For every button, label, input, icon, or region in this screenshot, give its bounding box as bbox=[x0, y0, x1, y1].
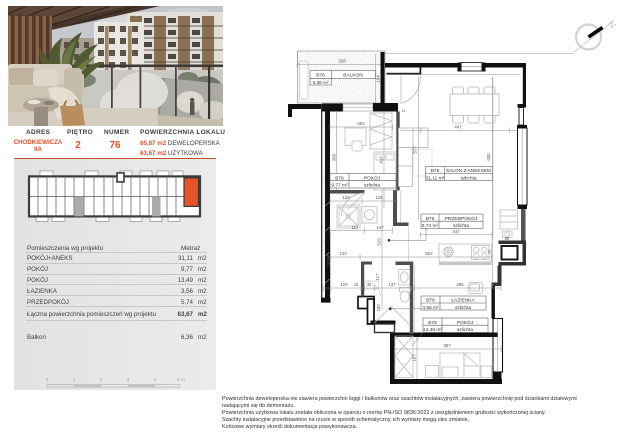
svg-text:11: 11 bbox=[401, 108, 405, 113]
svg-text:POKÓJ: POKÓJ bbox=[457, 319, 474, 326]
svg-text:13,49 m²: 13,49 m² bbox=[423, 327, 442, 333]
svg-text:128: 128 bbox=[342, 195, 350, 200]
svg-text:5 m: 5 m bbox=[177, 377, 185, 382]
svg-text:529: 529 bbox=[376, 238, 381, 246]
svg-text:35: 35 bbox=[367, 282, 372, 287]
svg-text:B76: B76 bbox=[426, 298, 435, 304]
svg-text:4: 4 bbox=[154, 377, 157, 382]
svg-text:254: 254 bbox=[357, 121, 365, 126]
svg-text:B76: B76 bbox=[335, 175, 344, 181]
svg-text:31,11 m²: 31,11 m² bbox=[426, 175, 445, 181]
svg-text:3,56 m²: 3,56 m² bbox=[422, 305, 439, 311]
svg-text:3: 3 bbox=[127, 377, 130, 382]
svg-text:B76: B76 bbox=[428, 320, 437, 326]
svg-text:18: 18 bbox=[487, 250, 492, 254]
svg-text:szlichta: szlichta bbox=[364, 183, 380, 189]
svg-text:117: 117 bbox=[352, 225, 360, 230]
svg-text:2: 2 bbox=[100, 377, 103, 382]
svg-text:ŁAZIENKA: ŁAZIENKA bbox=[451, 298, 475, 304]
svg-text:447: 447 bbox=[452, 229, 460, 234]
svg-text:BALKON: BALKON bbox=[343, 73, 363, 79]
svg-text:0: 0 bbox=[46, 377, 49, 382]
svg-text:123: 123 bbox=[339, 251, 347, 256]
svg-text:194: 194 bbox=[376, 75, 381, 83]
svg-text:B76: B76 bbox=[431, 168, 440, 174]
svg-text:137: 137 bbox=[388, 282, 396, 287]
svg-text:100: 100 bbox=[376, 304, 381, 312]
svg-text:5,74 m²: 5,74 m² bbox=[422, 223, 439, 229]
svg-text:416: 416 bbox=[378, 156, 383, 164]
svg-text:szlichta: szlichta bbox=[453, 223, 469, 229]
svg-text:9,77 m²: 9,77 m² bbox=[331, 183, 348, 189]
svg-text:POKÓJ: POKÓJ bbox=[364, 174, 381, 181]
svg-text:PRZEDPOKÓJ: PRZEDPOKÓJ bbox=[445, 215, 478, 222]
svg-text:157: 157 bbox=[411, 354, 416, 362]
svg-text:522: 522 bbox=[425, 251, 433, 256]
svg-text:B76: B76 bbox=[316, 73, 325, 79]
svg-text:630: 630 bbox=[486, 153, 491, 161]
svg-text:358: 358 bbox=[332, 153, 337, 161]
svg-text:123: 123 bbox=[340, 282, 348, 287]
svg-text:357: 357 bbox=[443, 343, 451, 348]
svg-text:577: 577 bbox=[413, 146, 418, 154]
svg-text:szlichta: szlichta bbox=[455, 305, 471, 311]
svg-text:B76: B76 bbox=[426, 216, 435, 222]
svg-text:66: 66 bbox=[505, 236, 510, 241]
svg-text:15: 15 bbox=[354, 282, 359, 287]
svg-text:SALON Z ANEKSEM: SALON Z ANEKSEM bbox=[446, 168, 491, 174]
svg-text:szlichta: szlichta bbox=[457, 327, 473, 333]
svg-text:117: 117 bbox=[375, 273, 380, 281]
svg-text:447: 447 bbox=[454, 125, 462, 130]
svg-text:1: 1 bbox=[73, 377, 76, 382]
svg-text:szlichta: szlichta bbox=[461, 175, 477, 181]
svg-text:147: 147 bbox=[376, 225, 384, 230]
svg-text:281: 281 bbox=[326, 259, 331, 267]
svg-text:N: N bbox=[605, 19, 618, 31]
svg-text:328: 328 bbox=[338, 59, 346, 64]
svg-text:6,36 m²: 6,36 m² bbox=[313, 80, 329, 85]
svg-text:296: 296 bbox=[456, 282, 464, 287]
